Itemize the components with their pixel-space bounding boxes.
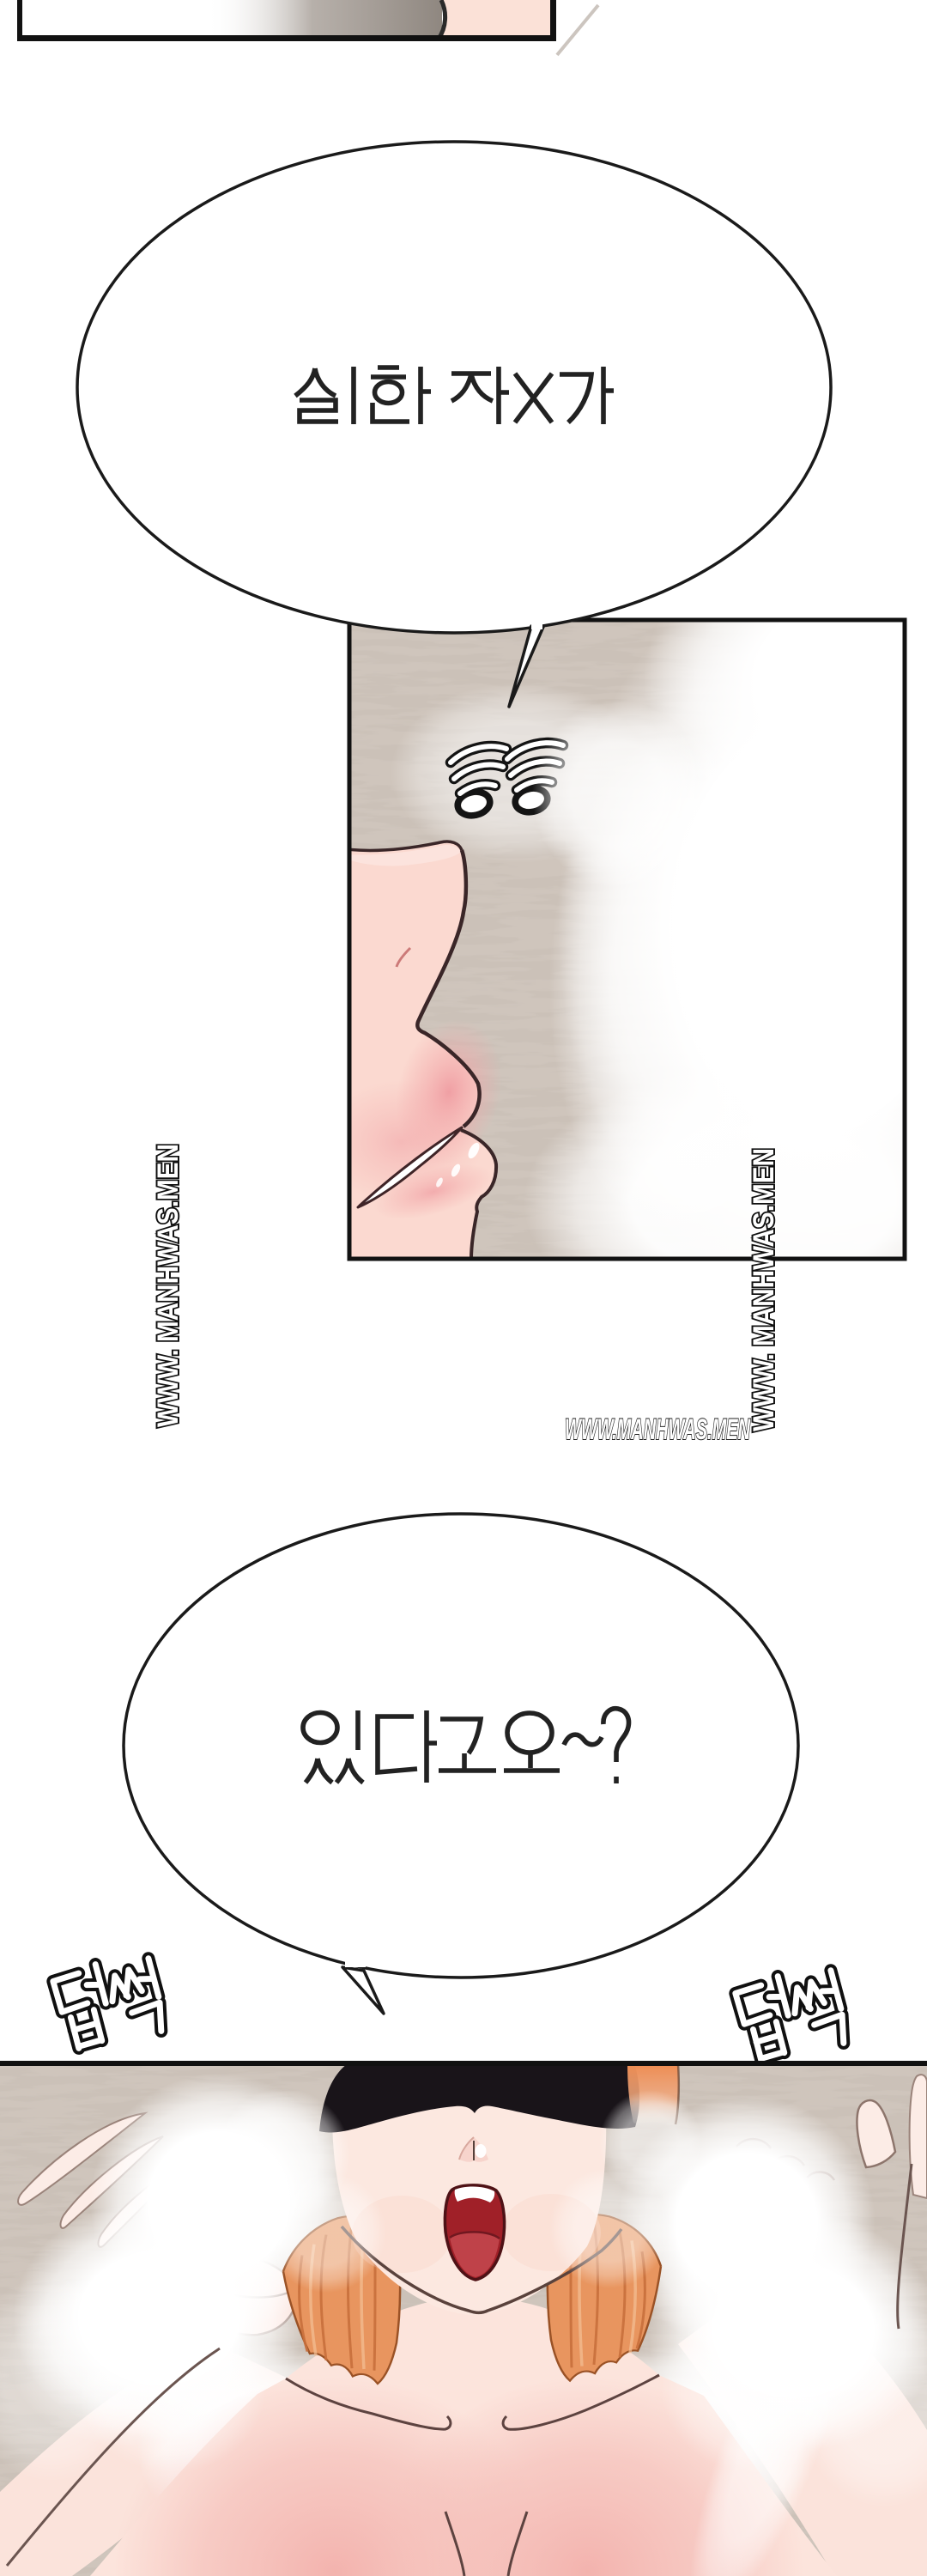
svg-text:WWW.MANHWAS.MEN: WWW.MANHWAS.MEN	[565, 1413, 751, 1446]
svg-text:WWW. MANHWAS.MEN: WWW. MANHWAS.MEN	[152, 1144, 185, 1427]
svg-text:WWW. MANHWAS.MEN: WWW. MANHWAS.MEN	[748, 1148, 780, 1431]
